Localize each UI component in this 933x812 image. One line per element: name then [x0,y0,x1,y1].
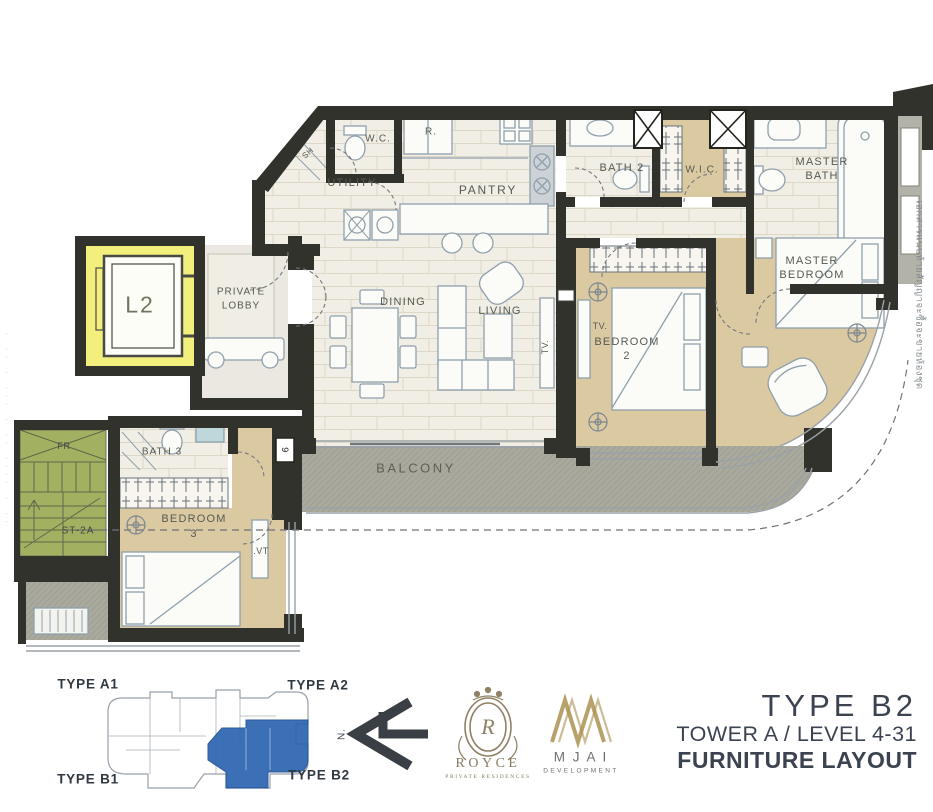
room-label-pantry: PANTRY [459,183,517,197]
keyplan-label-type-a1: TYPE A1 [57,677,118,692]
tv-label-living: TV. [540,340,550,355]
mjai-wordmark: M J A I [554,750,609,765]
margin-note-left: · ·· · ··· · ·· ···· · ·· [2,332,12,528]
door-tag-box-small [558,290,574,301]
room-label-private-lobby-1: PRIVATE [217,287,265,298]
room-label-bedroom2-2: 2 [623,350,630,362]
tv-label-bedroom3: .VT [253,546,269,556]
room-label-master-bath-1: MASTER [795,156,848,168]
room-label-refrigerator: R. [425,127,437,138]
room-label-master-bath-2: BATH [805,170,838,182]
title-tower-level: TOWER A / LEVEL 4-31 [676,722,917,747]
room-label-bath3: BATH 3 [142,447,182,458]
room-label-wc: W.C. [365,134,391,145]
floor-plan-page: W.C. R. UTILITY PANTRY BATH 2 W.I.C. MAS… [0,0,933,812]
keyplan-label-type-b1: TYPE B1 [57,772,119,787]
stairs-label: ST-2A [62,526,95,537]
margin-note-right: เอกสารแนบท้ายสัญญาจะซื้อจะขายห้องชุด [912,200,927,389]
facade-panel [901,128,919,186]
room-label-master-bedroom-2: BEDROOM [779,269,844,281]
fire-riser-label: FR [58,441,71,451]
room-label-bedroom3-1: BEDROOM [161,513,226,525]
room-label-wic: W.I.C. [685,165,718,176]
north-label: N. [337,728,348,740]
room-label-bath2: BATH 2 [600,162,645,174]
title-drawing-name: FURNITURE LAYOUT [677,747,917,774]
door-tag-label: 9 [280,447,290,453]
keyplan-building [108,690,308,788]
room-label-balcony: BALCONY [376,461,456,476]
tv-label-bedroom2: TV. [593,321,608,331]
title-unit-type: TYPE B2 [762,688,918,724]
keyplan-label-type-a2: TYPE A2 [287,678,348,693]
north-arrow-icon [356,702,428,766]
room-label-utility: UTILITY [327,177,376,189]
room-label-private-lobby-2: LOBBY [222,301,260,312]
room-label-bedroom2-1: BEDROOM [594,336,659,348]
royce-subtitle: PRIVATE RESIDENCES [445,774,530,780]
royce-wordmark: ROYCE [456,756,521,772]
room-label-dining: DINING [380,296,426,308]
mjai-subtitle: DEVELOPMENT [543,768,619,775]
mjai-monogram-icon [552,700,611,742]
elevator-label: L2 [125,292,155,319]
room-label-bedroom3-2: 3 [190,528,197,540]
keyplan-label-type-b2: TYPE B2 [288,768,350,783]
room-label-living: LIVING [478,305,521,317]
room-label-master-bedroom-1: MASTER [785,255,838,267]
royce-monogram: R [481,714,494,740]
